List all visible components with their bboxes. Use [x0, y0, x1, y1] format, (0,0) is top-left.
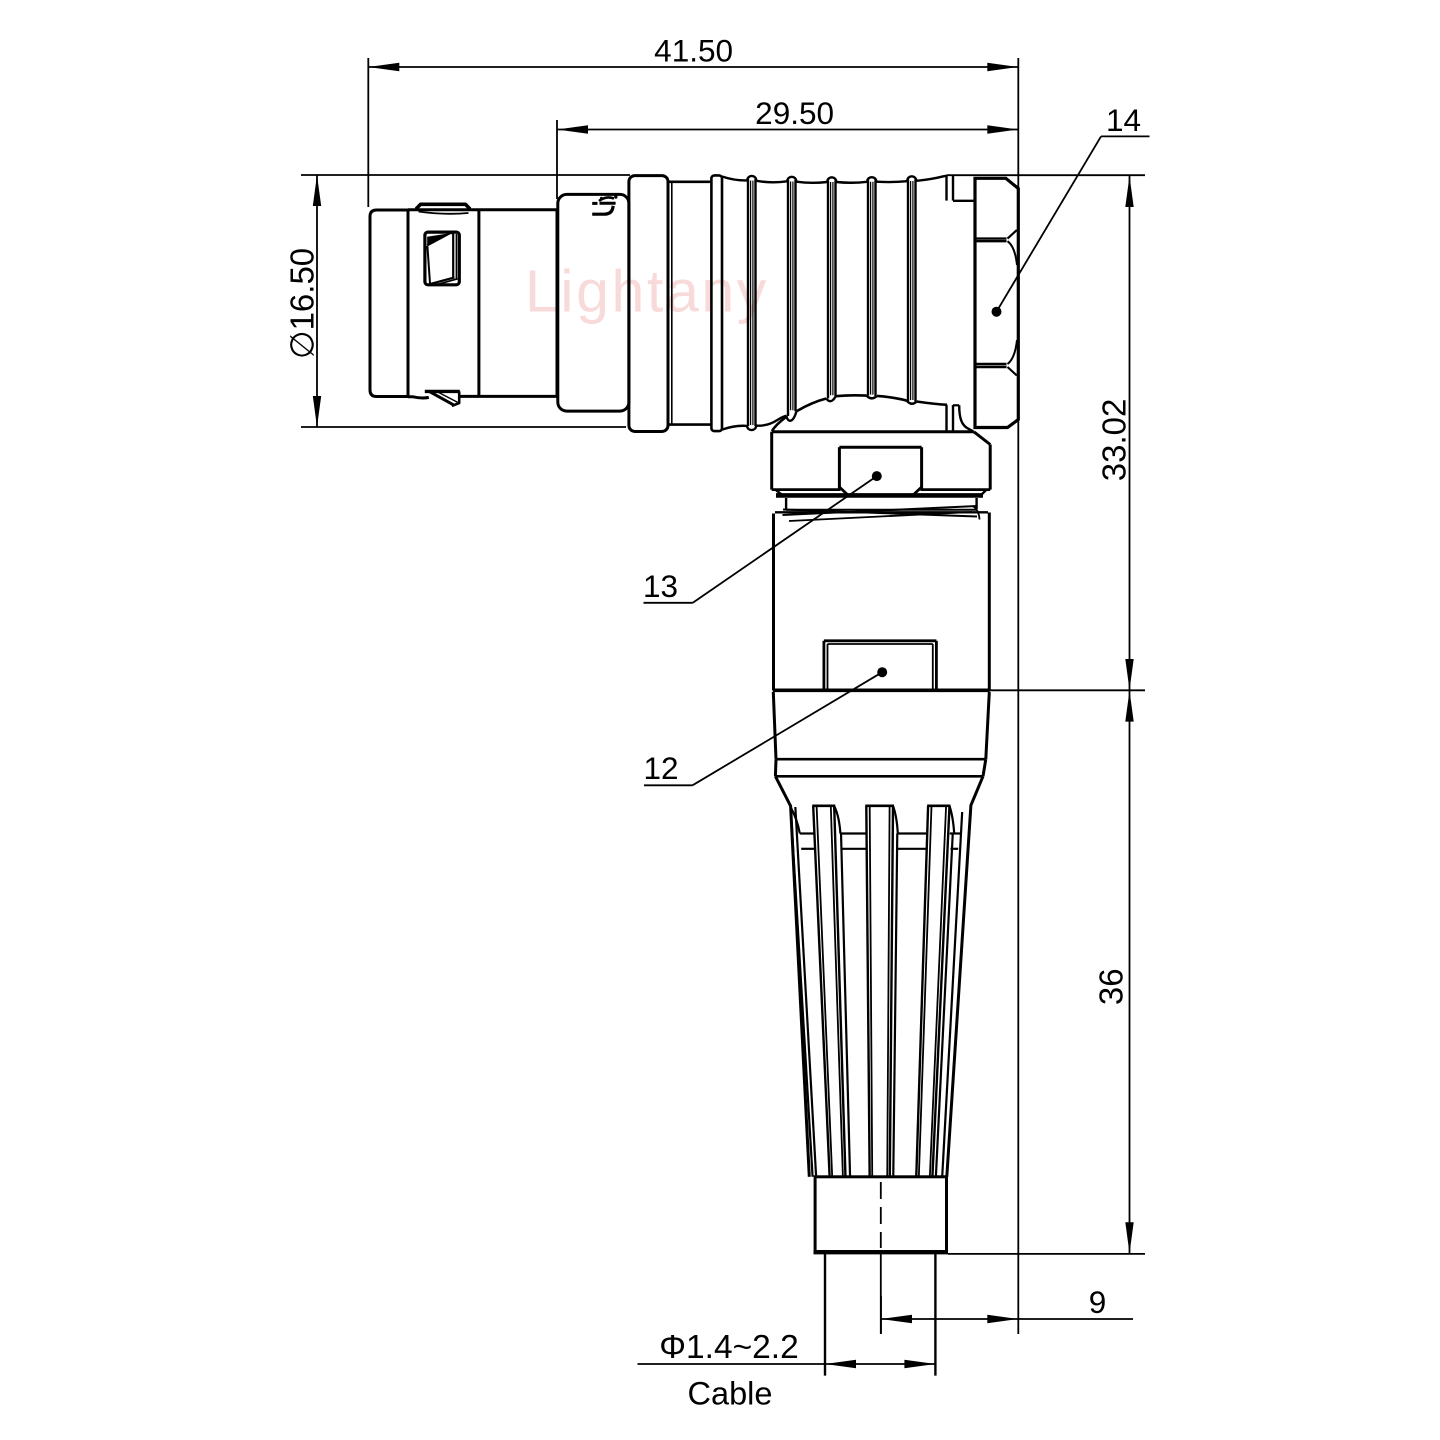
- svg-text:36: 36: [1093, 968, 1130, 1005]
- svg-text:41.50: 41.50: [654, 33, 733, 69]
- svg-text:13: 13: [643, 568, 678, 604]
- svg-text:Lightany: Lightany: [525, 259, 769, 325]
- svg-text:Cable: Cable: [688, 1376, 773, 1412]
- svg-text:∅16.50: ∅16.50: [284, 248, 321, 359]
- svg-text:29.50: 29.50: [755, 95, 834, 131]
- svg-text:Φ1.4~2.2: Φ1.4~2.2: [659, 1329, 798, 1366]
- svg-text:14: 14: [1106, 102, 1141, 138]
- svg-text:12: 12: [644, 750, 679, 786]
- svg-text:33.02: 33.02: [1096, 399, 1133, 482]
- svg-text:9: 9: [1089, 1284, 1107, 1320]
